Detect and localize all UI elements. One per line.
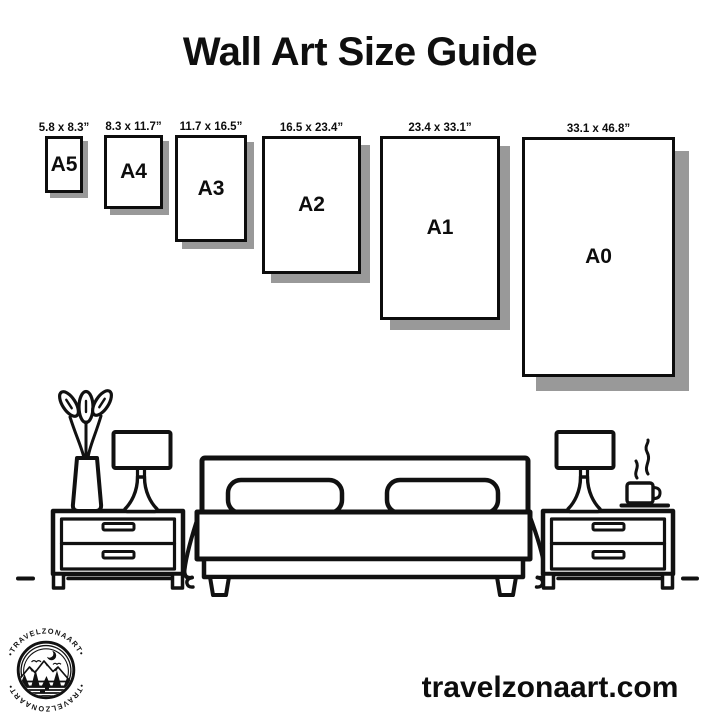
paper-code-label: A0 — [585, 245, 612, 269]
paper-code-label: A5 — [51, 153, 78, 177]
paper-size-card-a0: 33.1 x 46.8” A0 — [522, 137, 675, 377]
right-table-lamp-icon — [557, 432, 614, 512]
brand-logo-badge: •TRAVELZONAART• •TRAVELZONAART• — [1, 625, 91, 715]
left-table-lamp-icon — [114, 432, 171, 512]
coffee-cup-icon — [622, 440, 669, 506]
wall-art-size-guide-poster: Wall Art Size Guide 5.8 x 8.3” A5 8.3 x … — [0, 0, 720, 720]
paper-size-card-a4: 8.3 x 11.7” A4 — [104, 135, 163, 209]
paper-dimensions-label: 23.4 x 33.1” — [408, 122, 471, 134]
paper-size-card-a3: 11.7 x 16.5” A3 — [175, 135, 247, 242]
bedroom-illustration — [0, 380, 720, 600]
right-nightstand-icon — [543, 511, 673, 588]
left-nightstand-icon — [53, 511, 183, 588]
paper-dimensions-label: 16.5 x 23.4” — [280, 122, 343, 134]
paper-code-label: A2 — [298, 193, 325, 217]
paper-code-label: A4 — [120, 160, 147, 184]
paper-dimensions-label: 5.8 x 8.3” — [39, 122, 90, 134]
paper-dimensions-label: 33.1 x 46.8” — [567, 123, 630, 135]
page-title: Wall Art Size Guide — [0, 30, 720, 75]
paper-size-card-a5: 5.8 x 8.3” A5 — [45, 136, 83, 193]
bed-icon — [184, 458, 545, 595]
flower-vase-icon — [56, 388, 115, 511]
paper-dimensions-label: 11.7 x 16.5” — [180, 121, 243, 133]
paper-dimensions-label: 8.3 x 11.7” — [105, 121, 161, 133]
website-url: travelzonaart.com — [380, 671, 720, 705]
paper-code-label: A1 — [427, 216, 454, 240]
paper-size-card-a2: 16.5 x 23.4” A2 — [262, 136, 361, 274]
paper-code-label: A3 — [198, 177, 225, 201]
paper-size-card-a1: 23.4 x 33.1” A1 — [380, 136, 500, 320]
